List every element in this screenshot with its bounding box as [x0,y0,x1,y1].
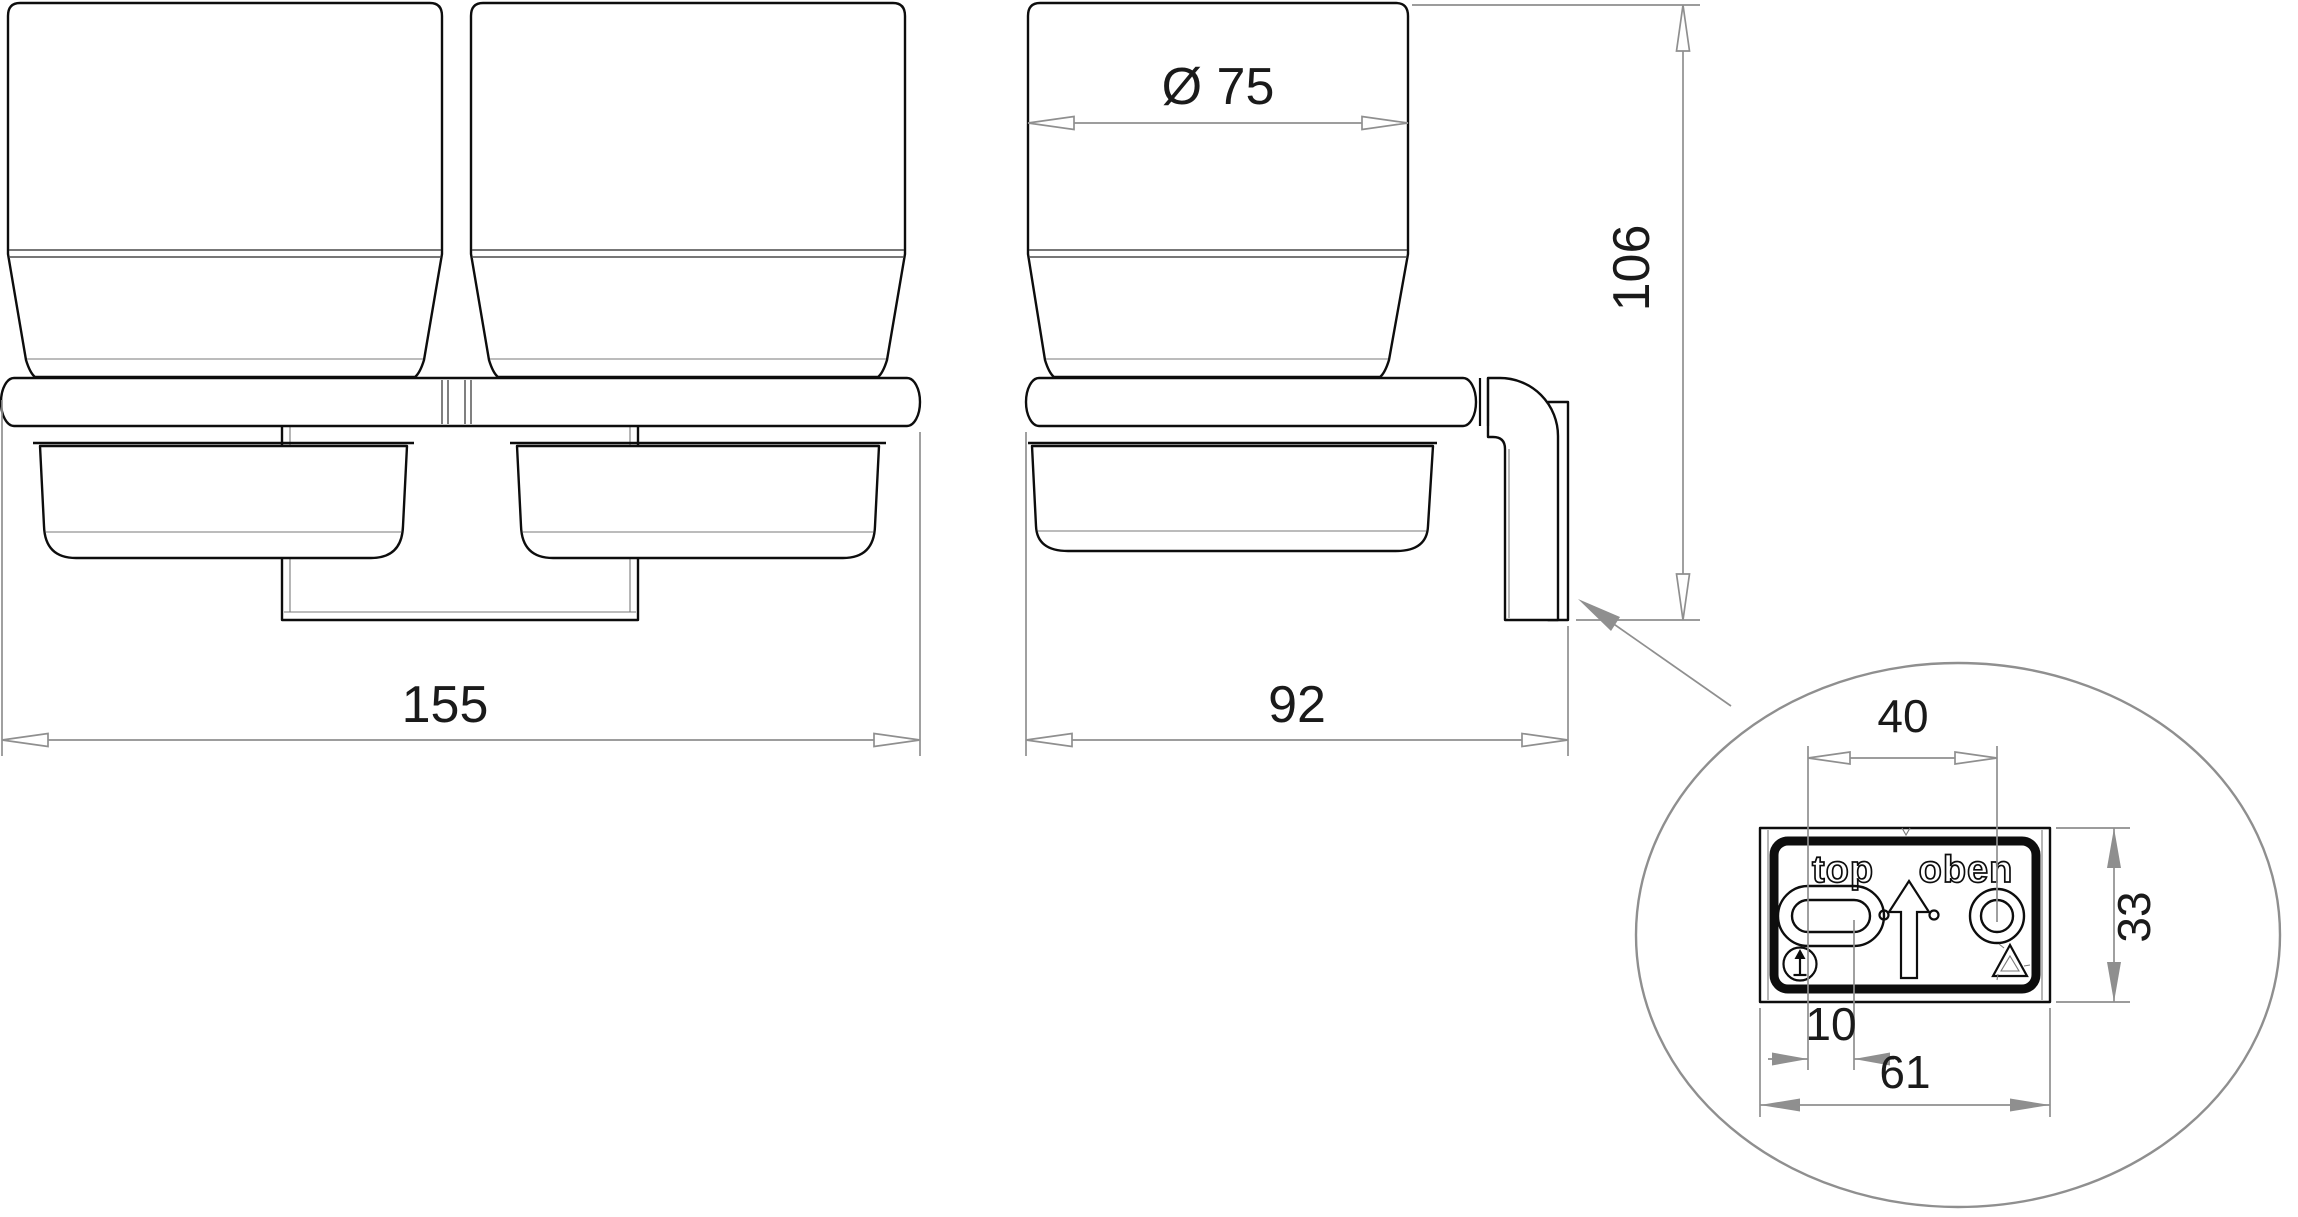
dim-61: 61 [1760,1008,2050,1117]
holder-ring-front [1,378,920,426]
arrow-left-icon [1760,1099,1800,1112]
dim-155-label: 155 [402,676,489,734]
drawing-canvas: 155 [0,0,2298,1217]
dim-92-label: 92 [1268,676,1326,734]
wall-bracket [1488,378,1558,620]
glass-cup-left [8,3,442,377]
arrow-right-icon [1522,734,1568,747]
glass-bottom-side [1028,443,1437,551]
arrow-right-icon [1955,752,1997,764]
arrow-up-icon [1677,5,1690,51]
arrow-left-icon [1026,734,1072,747]
dim-40-label: 40 [1877,690,1928,742]
detail-view: top oben [1636,663,2280,1207]
arrow-up-icon [2107,828,2121,868]
dim-106-label: 106 [1603,225,1661,312]
glass-bottom-right [510,443,886,558]
holder-ring-side [1026,378,1488,426]
arrow-down-icon [1677,574,1690,620]
dim-10-label: 10 [1805,998,1856,1050]
dim-75-label: Ø 75 [1162,58,1275,116]
arrow-left-icon [1808,752,1850,764]
side-view: Ø 75 92 106 [1026,3,1731,756]
plate-text-oben: oben [1919,849,2014,891]
glass-bottom-left [33,443,414,558]
front-view: 155 [1,3,920,756]
arrow-right-icon [2010,1099,2050,1112]
leader-arrow-icon [1578,599,1620,631]
arrow-left-icon [2,734,48,747]
dim-33: 33 [2056,828,2160,1002]
arrow-right-icon [874,734,920,747]
arrow-down-icon [2107,962,2121,1002]
glass-cup-right [471,3,905,377]
dim-33-label: 33 [2108,891,2160,942]
technical-drawing: 155 [0,0,2298,1217]
plate-text-top: top [1812,849,1874,891]
leader-line [1578,599,1731,706]
dim-61-label: 61 [1879,1046,1930,1098]
mounting-plate: top oben [1760,828,2050,1002]
arrow-right-icon [1772,1053,1808,1066]
